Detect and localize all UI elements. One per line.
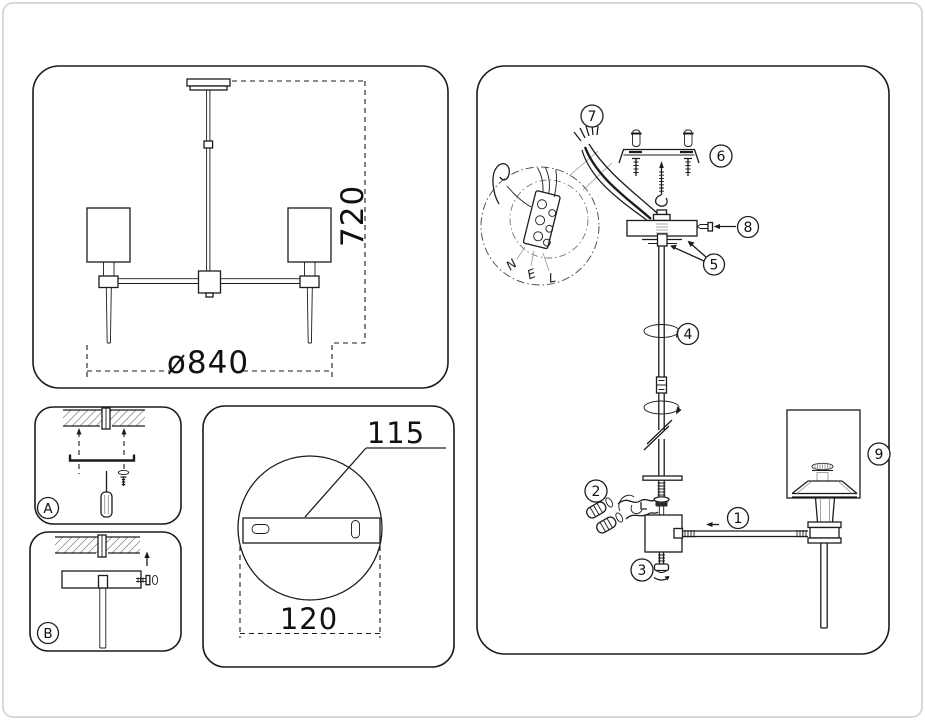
center-hub [199, 271, 221, 293]
overview-panel: 720 ø840 [33, 66, 448, 388]
callout-5-label: 5 [710, 258, 719, 274]
bottom-screw-cap [655, 564, 669, 571]
left-shade [87, 208, 130, 262]
callout-4-label: 4 [684, 327, 693, 343]
step-a-badge: A [38, 498, 59, 519]
stud-collar-top [657, 210, 667, 215]
left-joint [99, 276, 118, 288]
screw-b-head [146, 576, 150, 585]
right-joint [300, 276, 319, 288]
step-a-panel: A [35, 407, 181, 524]
arm-block-body [810, 528, 839, 539]
hub-arm-socket [674, 529, 683, 539]
callout-1-label: 1 [734, 511, 743, 527]
step-b-badge: B [38, 623, 59, 644]
bracket-length-label: 115 [367, 416, 425, 450]
step-b-label: B [43, 626, 52, 642]
callout-2-label: 2 [592, 484, 601, 500]
screwdriver-handle [101, 492, 112, 517]
step-b-panel: B [30, 532, 181, 651]
callout-6-label: 6 [717, 149, 726, 165]
height-dim-label: 720 [335, 185, 371, 247]
arm-block-top-flange [808, 522, 841, 528]
plate-diameter-label: 120 [280, 602, 338, 636]
instruction-sheet: 720 ø840 A [0, 0, 925, 720]
hub-tab [206, 293, 213, 297]
canopy-joint-b [99, 576, 108, 589]
socket-ring-ribs [815, 463, 830, 470]
side-screw-head [708, 223, 713, 232]
right-shade [288, 208, 331, 262]
ceiling-cap-lip [190, 86, 227, 90]
arm-block-bottom-flange [808, 538, 841, 543]
shade-body [787, 410, 860, 498]
callout-8-label: 8 [744, 220, 753, 236]
callout-3-label: 3 [638, 563, 647, 579]
step-a-label: A [43, 501, 53, 517]
assembly-diagram: 720 ø840 A [0, 0, 925, 720]
diameter-dim-label: ø840 [167, 345, 249, 381]
callout-9-label: 9 [875, 447, 884, 463]
plate-detail-panel: 115 120 [203, 406, 454, 667]
rod-washer [654, 497, 669, 502]
rod-nut [656, 502, 668, 507]
callout-7-label: 7 [588, 109, 597, 125]
rod-flange [643, 476, 682, 480]
canopy-nut [658, 234, 668, 246]
stud-threads [659, 172, 664, 191]
ceiling-cap [187, 79, 230, 86]
stud-collar-base [654, 215, 671, 221]
stem-coupler [204, 141, 213, 148]
assembly-panel: N E L 7 6 [477, 66, 890, 654]
